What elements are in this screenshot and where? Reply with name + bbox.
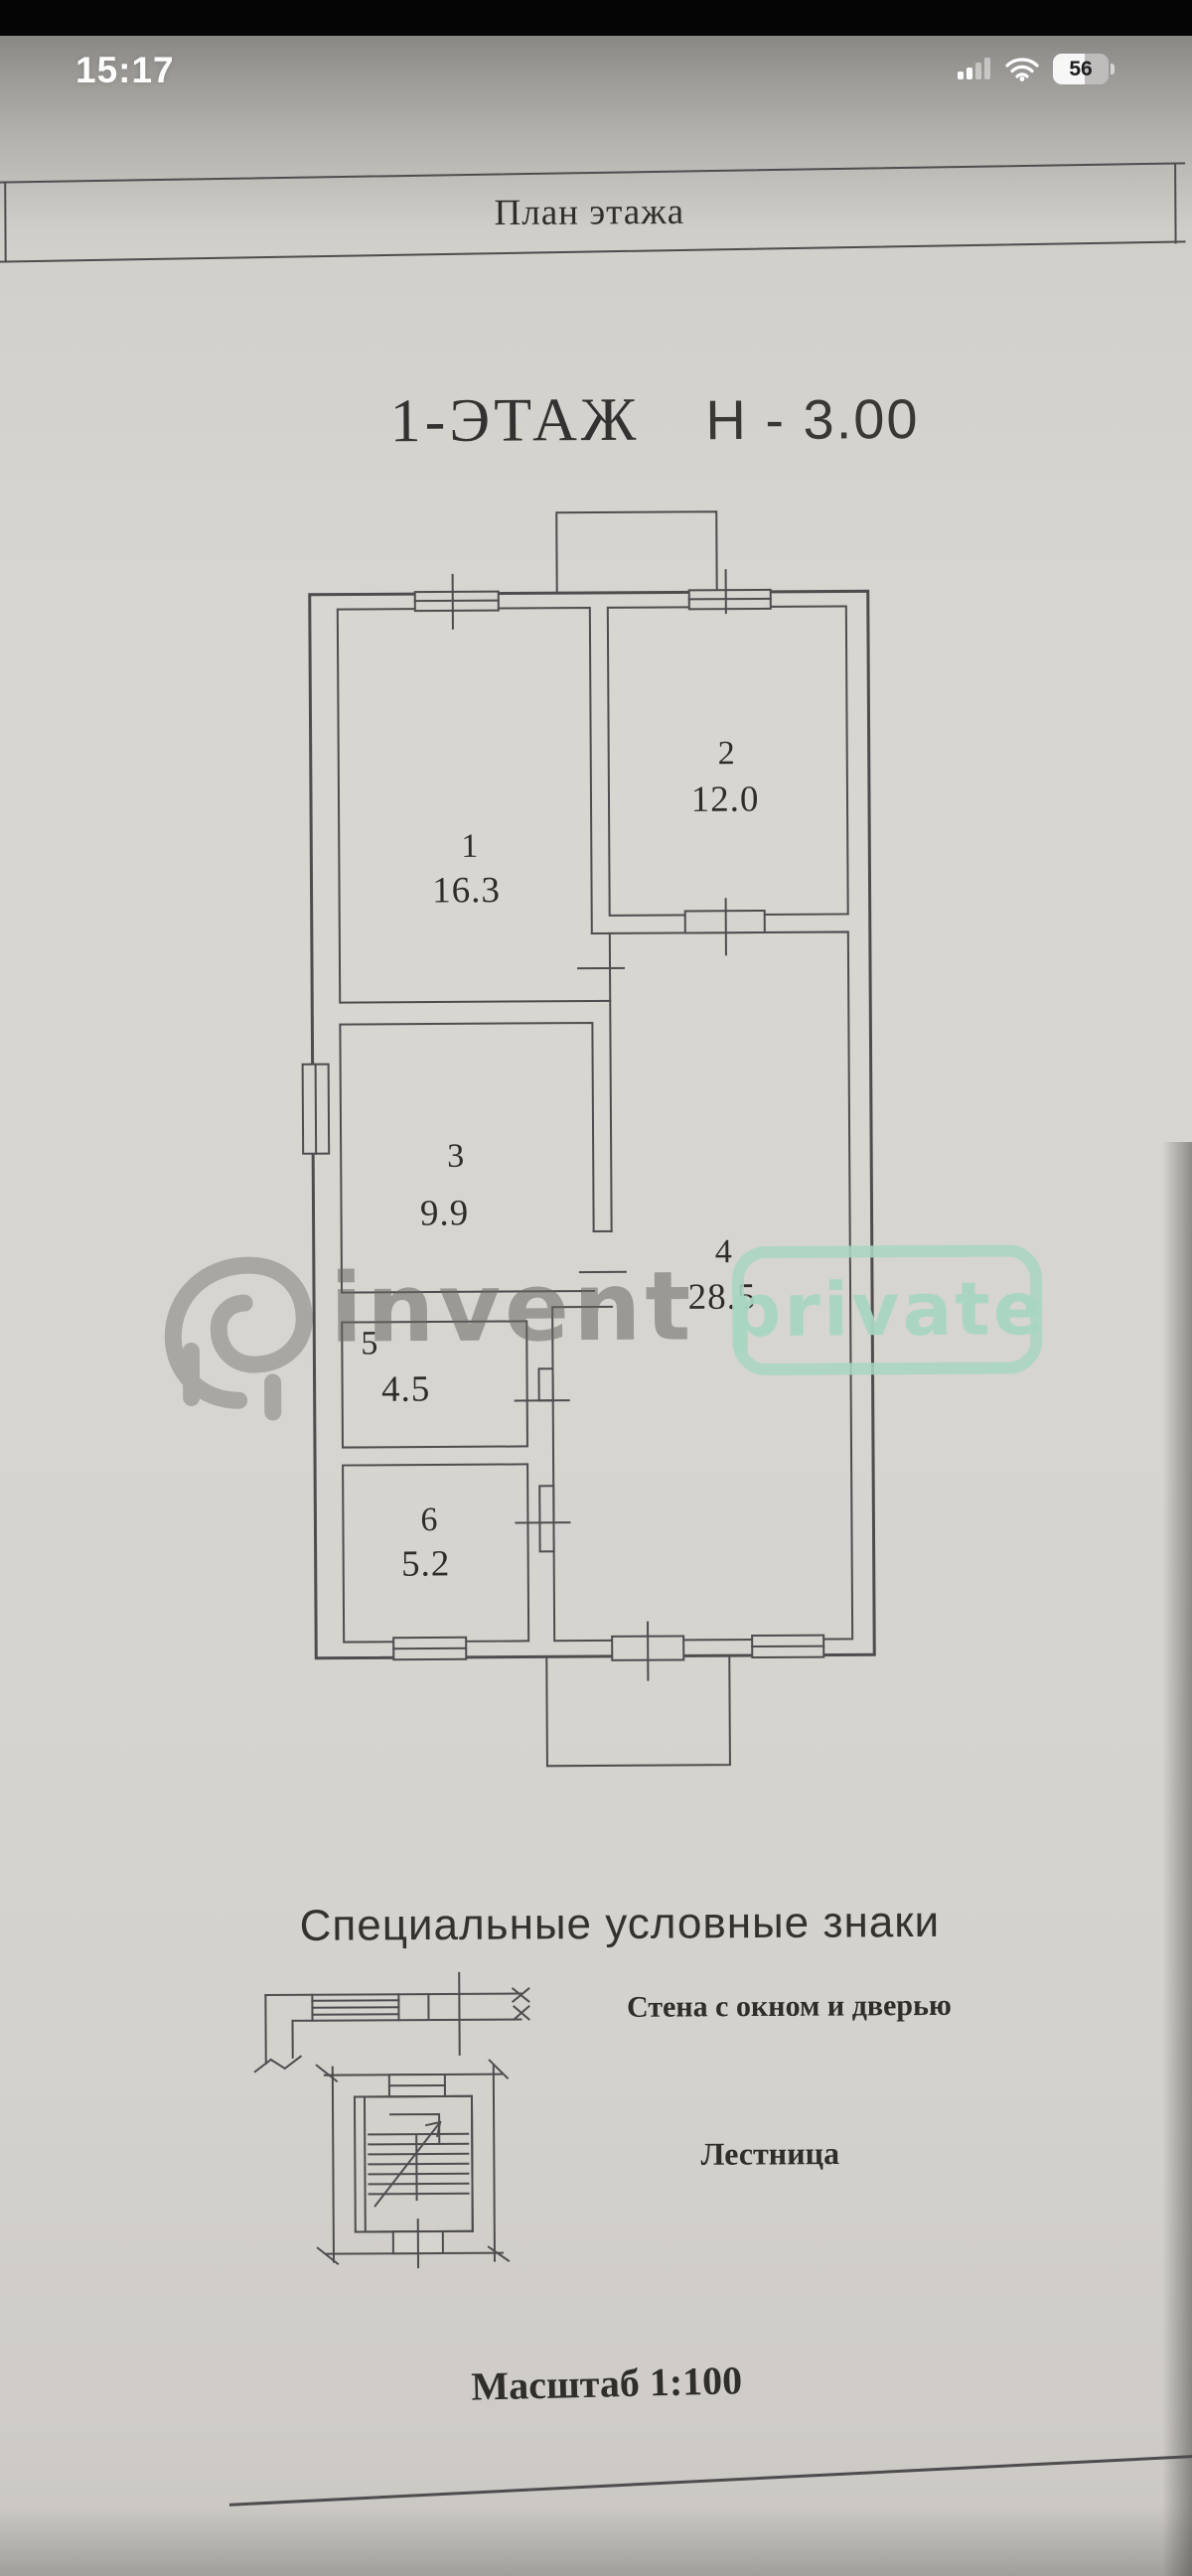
legend-heading: Специальные условные знаки xyxy=(300,1898,941,1951)
bottom-rule-line xyxy=(230,2456,1192,2504)
room-4-number: 4 xyxy=(715,1233,733,1271)
room-5-area: 4.5 xyxy=(381,1368,431,1411)
page-title: План этажа xyxy=(494,191,684,234)
room-1-number: 1 xyxy=(461,828,479,866)
status-bar: 15:17 56 xyxy=(0,36,1192,115)
battery-icon: 56 xyxy=(1053,54,1115,84)
room-6-number: 6 xyxy=(420,1502,438,1539)
room-4-area: 28.5 xyxy=(688,1276,757,1319)
room-3-area: 9.9 xyxy=(420,1192,470,1234)
cellular-signal-icon xyxy=(958,58,991,81)
legend-wall-label: Стена с окном и дверью xyxy=(627,1989,952,2025)
room-3-number: 3 xyxy=(447,1138,465,1176)
floor-label: 1-ЭТАЖ xyxy=(389,385,640,458)
clock-label: 15:17 xyxy=(75,50,175,91)
room-outlines xyxy=(338,606,852,1642)
room-1-area: 16.3 xyxy=(432,869,501,912)
wifi-icon xyxy=(1005,58,1039,81)
ceiling-height-label: Н - 3.00 xyxy=(705,386,920,452)
battery-percent-label: 56 xyxy=(1053,54,1109,84)
legend-wall-symbol xyxy=(254,1972,529,2072)
top-notch-bar xyxy=(0,0,1192,36)
room-2-area: 12.0 xyxy=(690,778,759,820)
document-photo: План этажа 1-ЭТАЖ Н - 3.00 1 16.3 2 12.0… xyxy=(0,0,1192,2576)
room-6-area: 5.2 xyxy=(401,1542,451,1585)
room-2-number: 2 xyxy=(718,735,736,773)
legend-stairs-label: Лестница xyxy=(700,2135,839,2173)
scale-label: Масштаб 1:100 xyxy=(471,2357,743,2409)
legend-stairs-symbol xyxy=(317,2061,509,2268)
phone-screenshot: План этажа 1-ЭТАЖ Н - 3.00 1 16.3 2 12.0… xyxy=(0,0,1192,2576)
floor-title: 1-ЭТАЖ Н - 3.00 xyxy=(389,383,919,457)
window-symbols xyxy=(300,570,824,1660)
room-5-number: 5 xyxy=(361,1325,378,1362)
